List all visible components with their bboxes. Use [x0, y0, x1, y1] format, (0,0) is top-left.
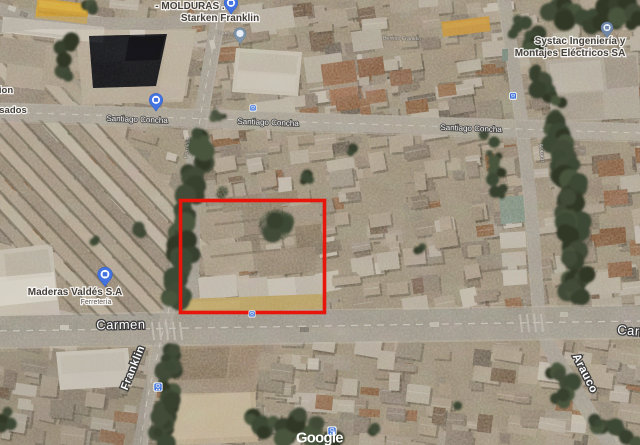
svg-text:Carm: Carm	[617, 322, 640, 339]
svg-text:sados: sados	[0, 105, 27, 116]
svg-text:Starken Franklin: Starken Franklin	[181, 13, 259, 24]
svg-text:Montajes Eléctricos SA: Montajes Eléctricos SA	[515, 48, 626, 59]
svg-text:Berrios Franklin: Berrios Franklin	[383, 36, 422, 43]
svg-text:Ferretería: Ferretería	[81, 299, 112, 306]
svg-text:- MOLDURAS .: - MOLDURAS .	[155, 1, 225, 12]
svg-text:Maderas Valdés S.A: Maderas Valdés S.A	[28, 287, 123, 298]
svg-text:Google: Google	[296, 431, 343, 445]
svg-text:Carmen: Carmen	[96, 317, 146, 333]
svg-text:ion: ion	[0, 85, 13, 96]
svg-text:Systac Ingeniería y: Systac Ingeniería y	[535, 36, 626, 47]
